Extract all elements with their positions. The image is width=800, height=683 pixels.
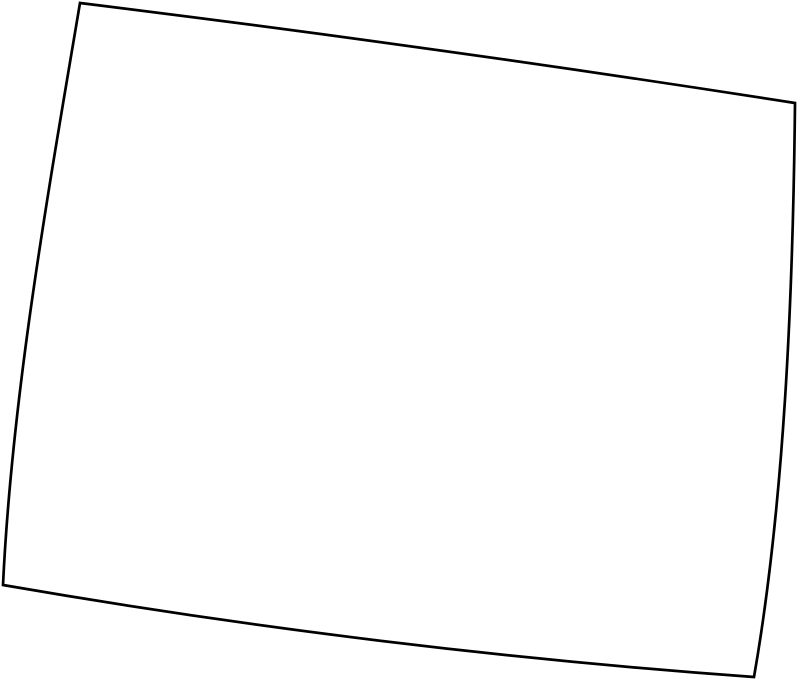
state-outline-map	[0, 0, 800, 683]
wyoming-outline-shape	[3, 3, 795, 677]
map-canvas	[0, 0, 800, 683]
